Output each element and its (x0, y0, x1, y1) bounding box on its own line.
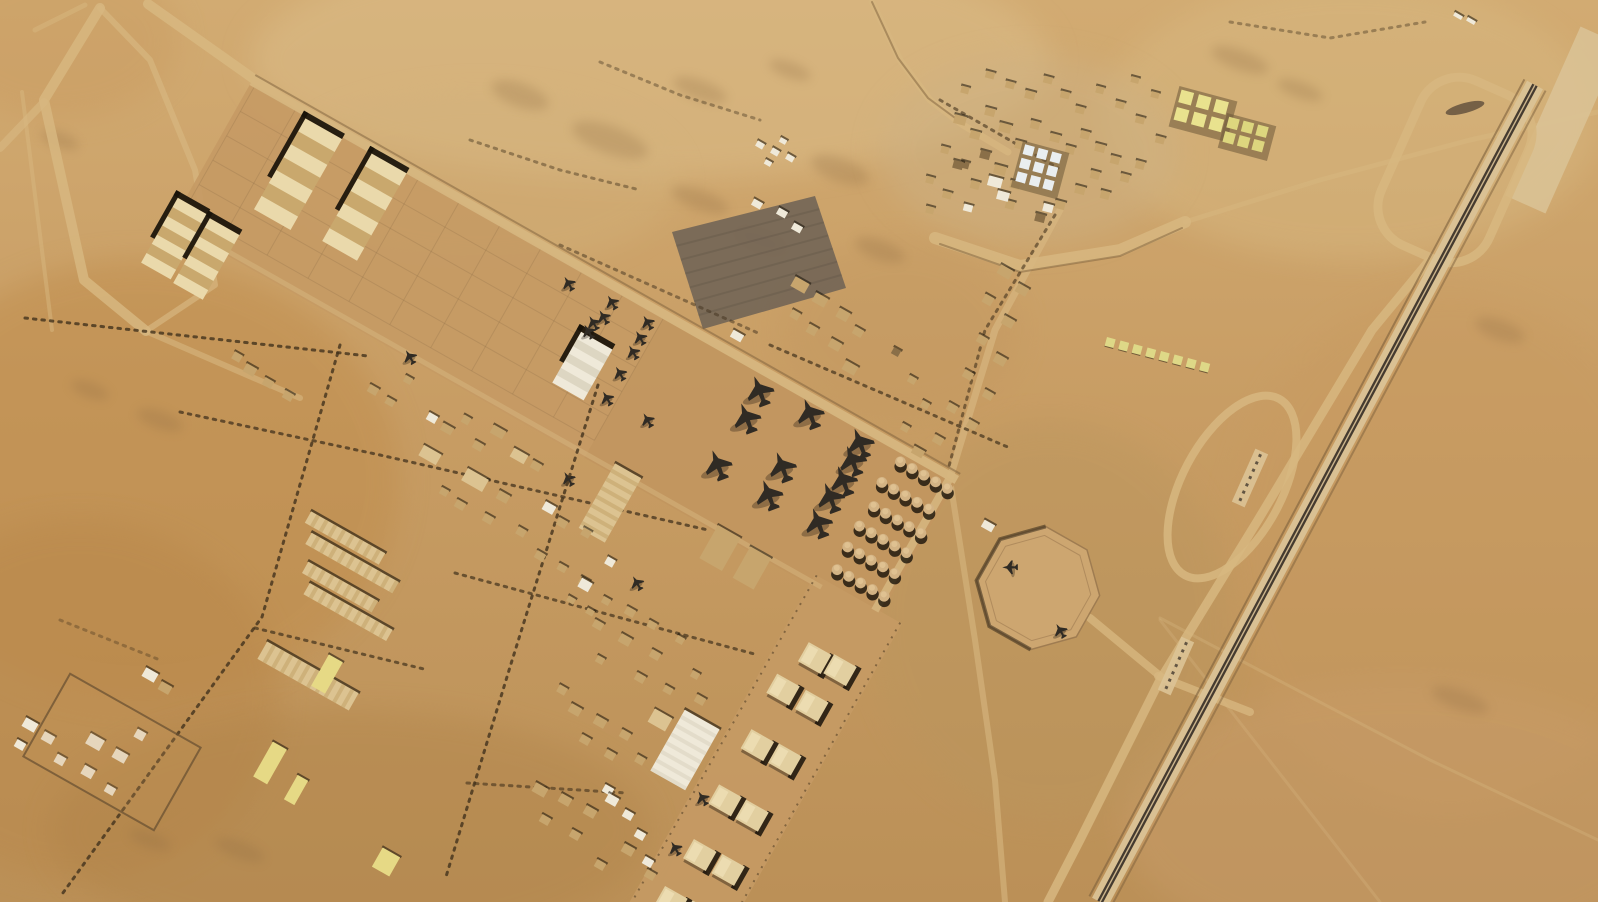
satellite-canvas (0, 0, 1598, 902)
satellite-image (0, 0, 1598, 902)
